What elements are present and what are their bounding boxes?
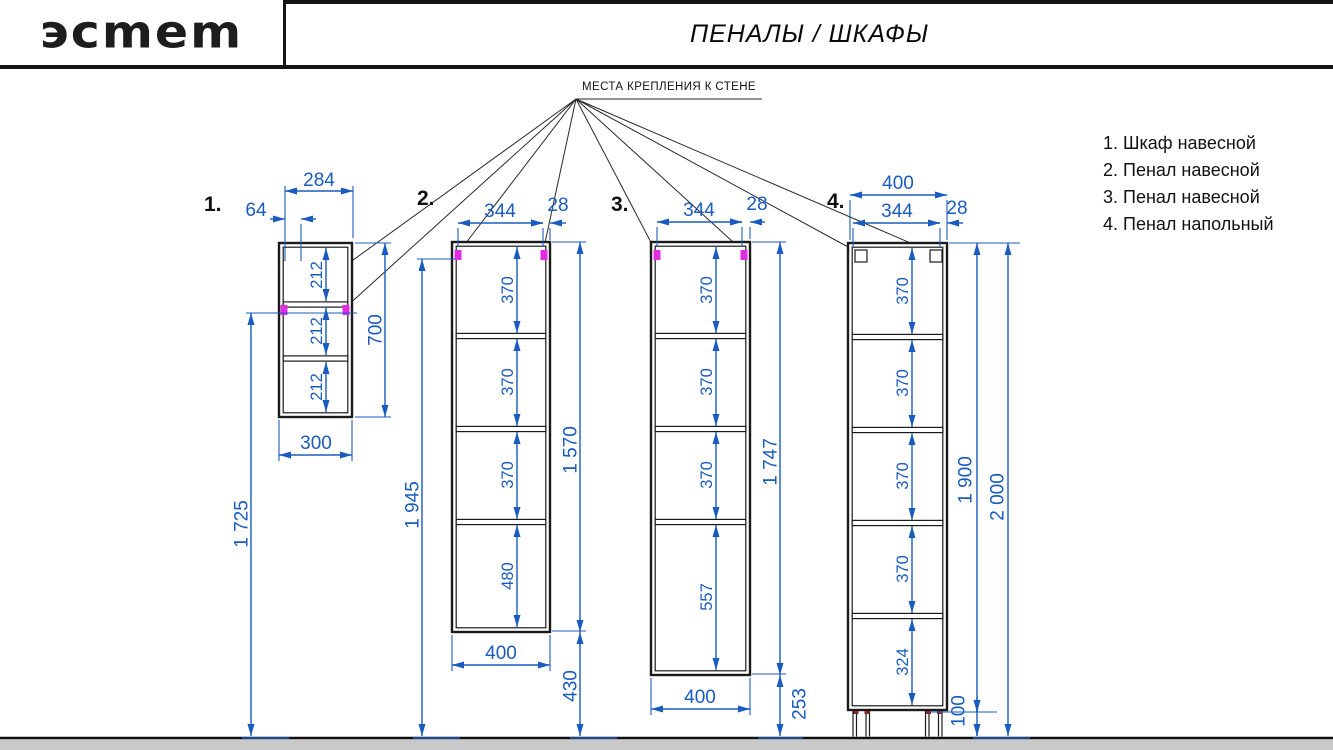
dim-label: 100 <box>949 695 970 727</box>
dim-label: 430 <box>561 670 582 702</box>
dim-label: 2 000 <box>988 473 1009 521</box>
legend-item-1: 1. Шкаф навесной <box>1103 133 1256 153</box>
shelf <box>852 613 943 618</box>
dim-label: 212 <box>308 261 326 289</box>
dim-label: 370 <box>894 277 912 305</box>
legend-item-2: 2. Пенал навесной <box>1103 160 1260 180</box>
cabinet-1-number: 1. <box>204 193 222 216</box>
wall-mount-clip <box>741 250 748 260</box>
shelf <box>456 426 546 431</box>
shelf <box>852 334 943 339</box>
shelf <box>852 520 943 525</box>
shelf <box>283 356 348 361</box>
dim-label: 480 <box>499 562 517 590</box>
wall-mount-clip <box>455 250 462 260</box>
dim-label: 64 <box>245 200 267 221</box>
dim-label: 28 <box>946 198 967 219</box>
shelf <box>456 519 546 524</box>
dim-label: 370 <box>499 461 517 489</box>
dim-label: 1 570 <box>561 426 582 474</box>
wall-mount-label: МЕСТА КРЕПЛЕНИЯ К СТЕНЕ <box>582 81 756 93</box>
cabinet-1-drawing: 1. <box>204 193 352 417</box>
cabinet-3-drawing: 3. <box>611 193 750 675</box>
dim-label: 400 <box>485 643 517 664</box>
cabinet-4-drawing: 4. <box>827 190 947 737</box>
dim-label: 370 <box>894 462 912 490</box>
dim-label: 370 <box>499 368 517 396</box>
shelf <box>655 333 746 338</box>
cabinet-2-drawing: 2. <box>417 187 550 632</box>
floor <box>0 738 1333 750</box>
dim-label: 1 747 <box>761 438 782 486</box>
dim-label: 400 <box>684 687 716 708</box>
wall-mount-bracket <box>930 250 942 262</box>
dim-label: 344 <box>881 201 913 222</box>
dim-label: 344 <box>683 200 715 221</box>
legend-item-3: 3. Пенал навесной <box>1103 187 1260 207</box>
dim-label: 370 <box>698 276 716 304</box>
dim-label: 400 <box>882 173 914 194</box>
drawing-sheet: эсmеm ПЕНАЛЫ / ШКАФЫ МЕСТА КРЕПЛЕ <box>0 0 1333 750</box>
dim-label: 300 <box>300 433 332 454</box>
shelf <box>456 333 546 338</box>
shelf <box>655 519 746 524</box>
dim-label: 370 <box>894 369 912 397</box>
dim-label: 1 725 <box>232 500 253 548</box>
wall-mount-clip <box>541 250 548 260</box>
shelf <box>852 427 943 432</box>
dim-label: 1 900 <box>956 456 977 504</box>
wall-mount-clip <box>654 250 661 260</box>
shelf <box>655 426 746 431</box>
dim-label: 370 <box>499 276 517 304</box>
cabinet-4-number: 4. <box>827 190 845 213</box>
dim-label: 700 <box>366 314 387 346</box>
cabinet-3-number: 3. <box>611 193 629 216</box>
dim-label: 28 <box>746 194 767 215</box>
dim-label: 370 <box>698 368 716 396</box>
dim-label: 284 <box>303 170 335 191</box>
dim-label: 370 <box>698 461 716 489</box>
dim-label: 28 <box>547 195 568 216</box>
cabinet-4-legs <box>853 710 942 737</box>
wall-mount-bracket <box>855 250 867 262</box>
dim-label: 253 <box>790 688 811 720</box>
legend: 1. Шкаф навесной 2. Пенал навесной 3. Пе… <box>1103 133 1274 234</box>
dim-label: 324 <box>894 648 912 676</box>
dim-label: 212 <box>308 317 326 345</box>
dim-label: 344 <box>484 201 516 222</box>
dim-label: 557 <box>698 583 716 611</box>
dim-label: 370 <box>894 555 912 583</box>
legend-item-4: 4. Пенал напольный <box>1103 214 1274 234</box>
cabinet-2-number: 2. <box>417 187 435 210</box>
drawing-canvas: МЕСТА КРЕПЛЕНИЯ К СТЕНЕ 1. <box>0 0 1333 750</box>
shelf <box>283 302 348 307</box>
dim-label: 1 945 <box>403 481 424 529</box>
dim-label: 212 <box>308 373 326 401</box>
